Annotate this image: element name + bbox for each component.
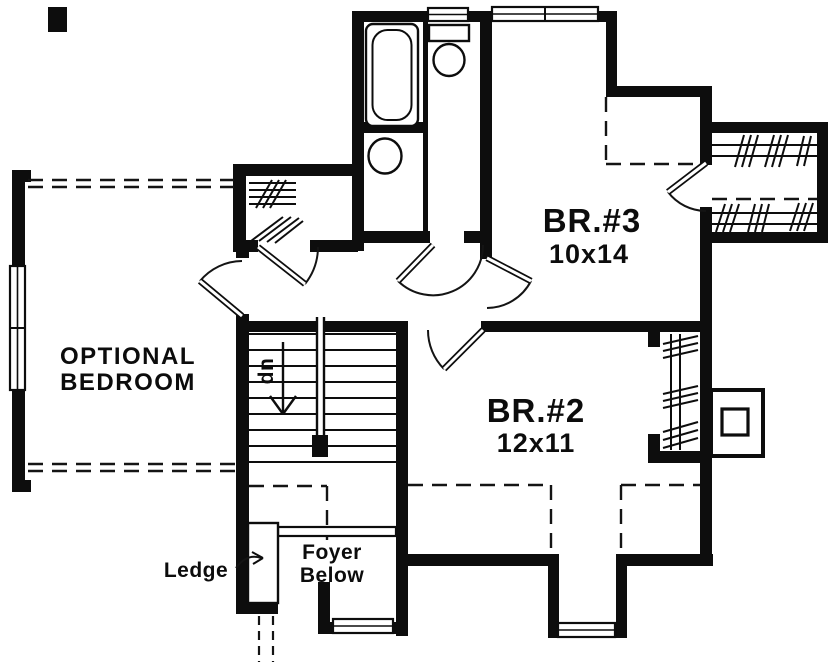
- doors: [200, 163, 706, 369]
- optional-bedroom-label-line1: OPTIONAL: [60, 343, 196, 370]
- wall-segment: [606, 86, 712, 97]
- window-bathroom: [428, 8, 468, 21]
- ledge-label: Ledge: [164, 559, 228, 582]
- door-hall-closet: [258, 247, 318, 284]
- wall-segment: [12, 388, 25, 492]
- bathroom-fixtures: [366, 24, 469, 174]
- wall-segment: [236, 243, 249, 258]
- staircase: dn: [249, 317, 396, 462]
- window-br3-double: [492, 7, 598, 21]
- hall-closet-hatching: [249, 180, 303, 243]
- foyer-below-label-line1: Foyer: [302, 541, 362, 564]
- floor-plan-drawing: dn: [0, 0, 837, 664]
- wall-segment: [396, 554, 559, 566]
- foyer-below-label-line2: Below: [300, 564, 365, 587]
- wall-stub-top-left: [48, 7, 67, 32]
- door-optional-bedroom: [200, 261, 242, 316]
- bathtub: [366, 24, 418, 126]
- wall-segment: [233, 164, 358, 176]
- door-br3-closet: [668, 163, 706, 211]
- br2-closet-hatching: [663, 334, 698, 450]
- window-optional-bedroom: [10, 266, 25, 390]
- walls: [12, 7, 828, 638]
- wall-segment: [648, 451, 712, 463]
- stair-center-rail: [312, 317, 328, 457]
- optional-bedroom-label-line2: BEDROOM: [60, 369, 196, 396]
- floor-plan-page: dn: [0, 0, 837, 664]
- window-br2-dormer: [558, 623, 615, 637]
- wall-segment: [700, 232, 828, 243]
- ledge-shelf: [248, 523, 278, 603]
- wall-segment: [396, 330, 408, 636]
- wall-segment: [352, 231, 430, 243]
- door-br2: [428, 330, 483, 369]
- wall-segment: [464, 231, 482, 243]
- br2-label: BR.#2: [487, 392, 586, 429]
- sink: [369, 139, 402, 174]
- toilet: [429, 25, 469, 76]
- wall-segment: [616, 554, 627, 638]
- wall-segment: [606, 11, 617, 95]
- br3-closet-hatching: [712, 135, 817, 232]
- wall-segment: [700, 122, 828, 133]
- window-foyer-dormer: [333, 619, 393, 633]
- wall-segment: [480, 11, 492, 259]
- door-br3: [487, 258, 531, 308]
- wall-segment: [12, 170, 25, 268]
- wall-segment: [616, 554, 713, 566]
- wall-segment: [817, 122, 828, 243]
- stairs-direction-label: dn: [255, 358, 278, 385]
- br3-label: BR.#3: [543, 202, 642, 239]
- wall-segment: [648, 321, 660, 347]
- br3-dimensions: 10x14: [549, 239, 629, 269]
- wall-segment: [481, 321, 712, 332]
- wall-segment: [233, 164, 246, 252]
- chimney: [711, 390, 763, 456]
- door-bathroom: [398, 245, 483, 295]
- br2-dimensions: 12x11: [497, 428, 576, 458]
- wall-segment: [12, 480, 31, 492]
- wall-segment: [700, 133, 712, 165]
- foyer-railing: [278, 527, 396, 536]
